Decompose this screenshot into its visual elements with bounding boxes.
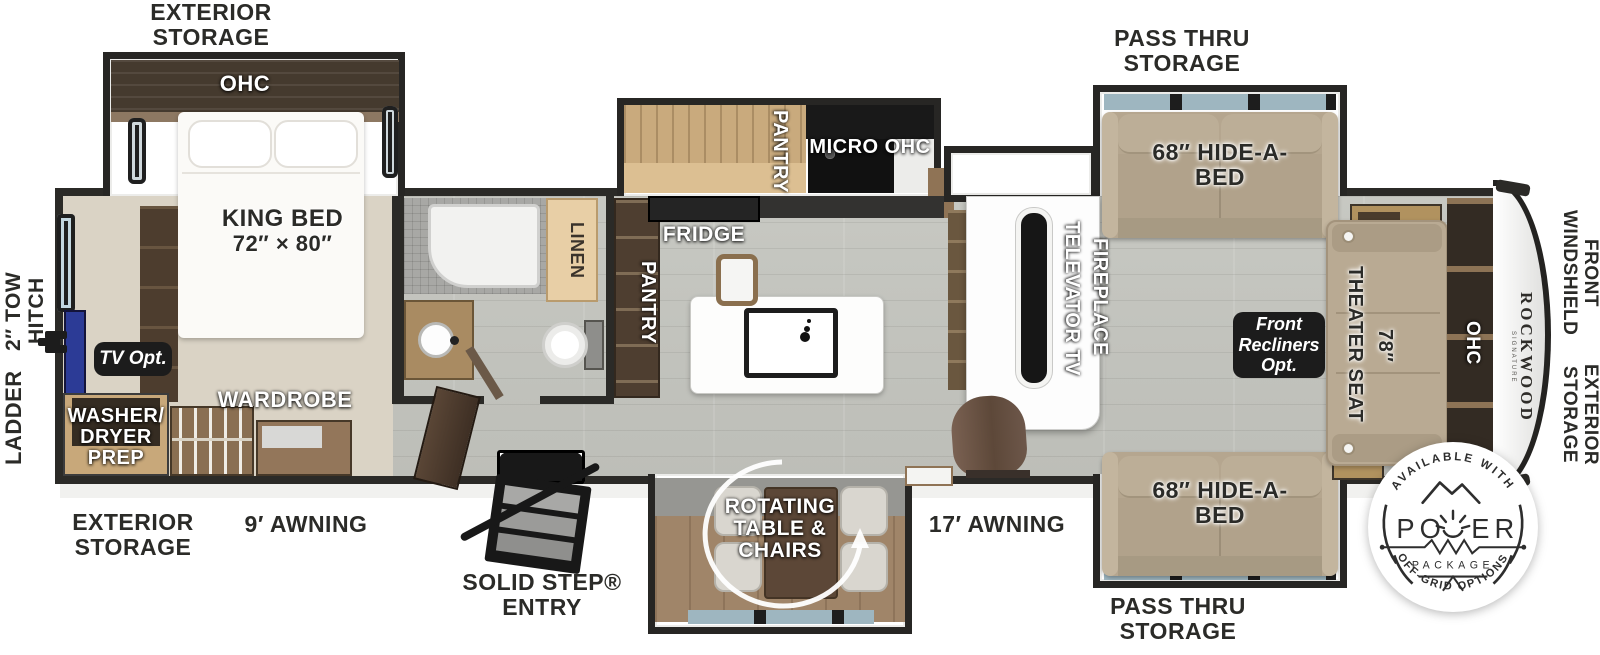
galley-bottom-counter	[905, 466, 953, 486]
micro-ohc-label: MICRO OHC	[804, 137, 936, 158]
fridge-label: FRIDGE	[650, 224, 758, 246]
awning9-label: 9′ AWNING	[235, 512, 377, 537]
sofa-arm	[1102, 112, 1118, 238]
island-sink	[744, 308, 838, 378]
sofa-arm	[1102, 452, 1118, 576]
hide-a-bed-bottom-label: 68″ HIDE-A-BED	[1140, 478, 1300, 529]
washer-dryer-label: WASHER/DRYERPREP	[61, 406, 171, 469]
bedroom-slide-window-left	[128, 118, 146, 184]
hide-a-bed-top-label: 68″ HIDE-A-BED	[1140, 140, 1300, 191]
sofa-front	[1118, 556, 1322, 576]
vanity-faucet	[450, 336, 459, 345]
accent-chair	[949, 394, 1028, 479]
step-tread	[496, 533, 574, 561]
vanity-sink	[418, 322, 454, 358]
tv-slot	[1016, 208, 1052, 388]
front-windshield-label: FRONT WINDSHIELD	[1554, 206, 1600, 340]
sink-faucet	[800, 332, 810, 342]
badge-package-text: PACKAGE	[1412, 559, 1494, 571]
pass-thru-bottom-label: PASS THRUSTORAGE	[1096, 594, 1260, 645]
toilet-bowl	[542, 322, 588, 368]
exterior-storage-right-label: EXTERIOR STORAGE	[1554, 348, 1600, 482]
pillow	[188, 120, 272, 168]
pillow	[274, 120, 358, 168]
exterior-storage-bottom-label: EXTERIORSTORAGE	[60, 510, 206, 561]
bedroom-ohc-label: OHC	[200, 72, 290, 95]
bedroom-slide-window-right	[382, 106, 398, 178]
solid-step-label: SOLID STEP®ENTRY	[452, 570, 632, 621]
pass-thru-top-label: PASS THRUSTORAGE	[1100, 26, 1264, 77]
tv-wall-cabinet	[944, 146, 1098, 202]
accent-chair-base	[966, 470, 1030, 478]
shower-pan	[428, 204, 540, 288]
island-stool	[716, 254, 758, 306]
duvet-fold	[182, 172, 360, 174]
cupholder	[1342, 442, 1355, 455]
sofa-front	[1118, 218, 1322, 238]
fireplace-label: FIREPLACE	[1084, 234, 1110, 360]
wardrobe-label: WARDROBE	[210, 388, 360, 411]
kitchen-pantry-label: PANTRY	[762, 108, 790, 194]
awning17-label: 17′ AWNING	[922, 512, 1072, 537]
front-recliners-badge: FrontReclinersOpt.	[1233, 312, 1325, 378]
bath-pantry-label: PANTRY	[630, 256, 658, 348]
front-ohc-label: OHC	[1458, 314, 1482, 372]
seat-width-label: 78″	[1372, 324, 1396, 368]
microwave	[806, 105, 934, 139]
king-bed-label: KING BED 72″ × 80″	[210, 206, 355, 257]
hitch-icon	[38, 338, 60, 346]
wardrobe-cabinet	[170, 406, 254, 476]
tv-shelf-wood	[948, 210, 968, 390]
bath-wall-right	[606, 196, 614, 404]
theater-seat-label: THEATER SEAT	[1340, 262, 1366, 426]
badge-power-right: ER	[1471, 513, 1519, 544]
bath-wall-bottom-b	[540, 396, 614, 404]
rotating-table-label: ROTATINGTABLE &CHAIRS	[700, 496, 860, 562]
fridge	[648, 196, 760, 222]
tv-opt-badge: TV Opt.	[94, 342, 172, 376]
badge-power-left: PO	[1396, 513, 1446, 544]
bath-wall-left	[392, 196, 404, 404]
passthru-top-skylight	[1104, 94, 1336, 110]
cupholder	[1342, 230, 1355, 243]
brand-logo: ROCKWOOD SIGNATURE	[1502, 272, 1536, 442]
ladder-label: LADDER	[2, 330, 42, 506]
power-package-badge: AVAILABLE WITH PO ER PACKAGE OFF-GRID OP…	[1366, 440, 1540, 614]
entry-steps	[484, 474, 591, 575]
wardrobe-rod	[172, 438, 252, 441]
rv-floorplan: OHC PANTRY MICRO OHC KING BED 72″ × 80″ …	[0, 0, 1600, 655]
dresser-top	[262, 426, 322, 448]
linen-label: LINEN	[558, 212, 586, 288]
exterior-storage-top-label: EXTERIORSTORAGE	[140, 0, 282, 51]
televator-tv-label: TELEVATOR TV	[1056, 212, 1082, 384]
